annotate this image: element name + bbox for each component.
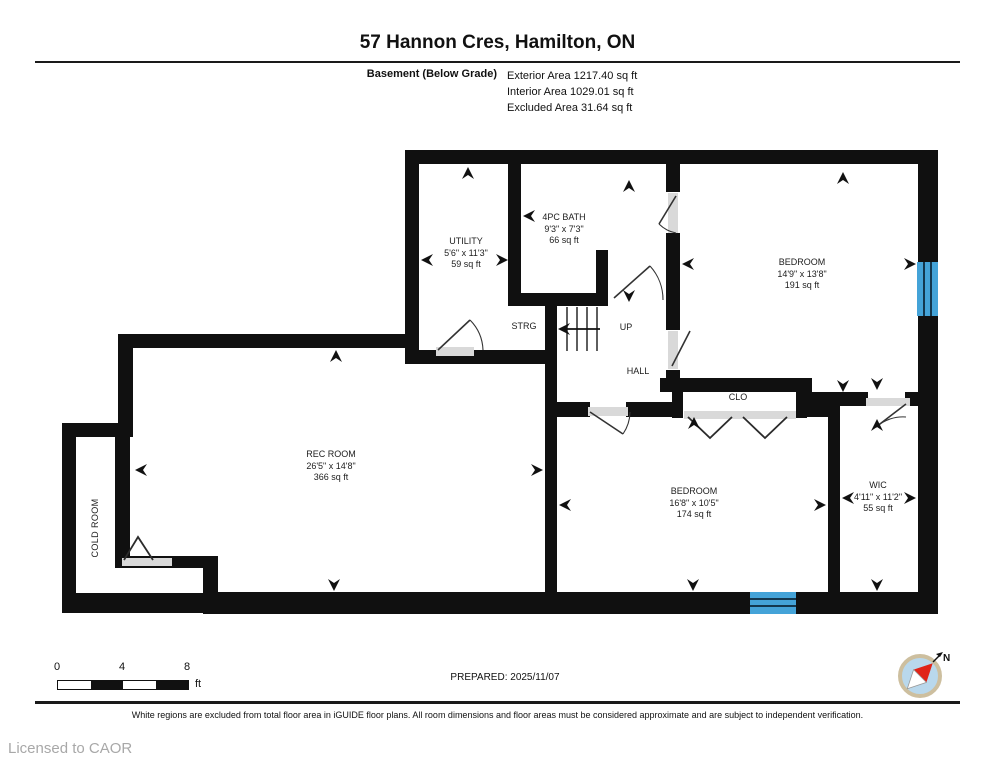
wall [62, 423, 76, 613]
scale-tick-0: 0 [47, 661, 67, 673]
room-label-rec-room: REC ROOM26'5" x 14'8"366 sq ft [306, 449, 356, 484]
license-text: Licensed to CAOR [8, 740, 132, 757]
wall [405, 150, 419, 364]
room-label-hall: HALL [627, 366, 650, 376]
wall [545, 300, 557, 352]
prepared-date: PREPARED: 2025/11/07 [380, 672, 630, 683]
door-threshold [588, 407, 628, 416]
scale-unit: ft [195, 678, 201, 690]
room-fill-bedroom-1 [812, 378, 918, 392]
wall [545, 348, 557, 592]
disclaimer-text: White regions are excluded from total fl… [0, 710, 995, 720]
room-label-utility: UTILITY5'6" x 11'3"59 sq ft [444, 236, 488, 271]
wall [666, 370, 680, 392]
wall [828, 406, 840, 592]
wall [626, 402, 675, 417]
room-label-closet: CLO [729, 392, 748, 402]
scale-numbers: 0 4 8 [57, 661, 197, 674]
footer-divider [35, 701, 960, 704]
stairs-area [557, 306, 608, 352]
room-label-bedroom-1: BEDROOM14'9" x 13'8"191 sq ft [777, 257, 826, 292]
wall [508, 150, 521, 306]
wall [557, 402, 590, 417]
wall [405, 350, 557, 364]
wall [118, 334, 419, 348]
wall [62, 593, 218, 613]
door-threshold [436, 347, 474, 356]
scale-bar [57, 680, 189, 690]
wall [118, 334, 133, 437]
stairs-up-label: UP [620, 322, 633, 332]
door-threshold [122, 558, 172, 566]
wall [918, 150, 938, 614]
room-label-storage: STRG [511, 321, 536, 331]
door-threshold [668, 331, 678, 369]
wall [807, 392, 868, 406]
floor-plan [0, 0, 995, 768]
floor-plan-page: 57 Hannon Cres, Hamilton, ON Basement (B… [0, 0, 995, 768]
scale-tick-8: 8 [177, 661, 197, 673]
room-label-bath: 4PC BATH9'3" x 7'3"66 sq ft [542, 212, 585, 247]
room-label-wic: WIC4'11" x 11'2"55 sq ft [854, 480, 902, 515]
window-icon [750, 592, 796, 614]
wall [666, 233, 680, 330]
door-threshold [668, 193, 678, 233]
wall [596, 250, 608, 306]
scale-tick-4: 4 [112, 661, 132, 673]
wall [203, 592, 918, 614]
wall [666, 150, 680, 192]
wall [115, 437, 130, 565]
window-icon [917, 262, 938, 316]
room-label-bedroom-2: BEDROOM16'8" x 10'5"174 sq ft [669, 486, 718, 521]
wall [508, 293, 608, 306]
door-threshold [684, 411, 796, 419]
room-fill-rec-room [215, 556, 545, 592]
room-label-cold-room: COLD ROOM [90, 498, 100, 557]
wall [660, 378, 812, 392]
door-threshold [866, 398, 910, 406]
